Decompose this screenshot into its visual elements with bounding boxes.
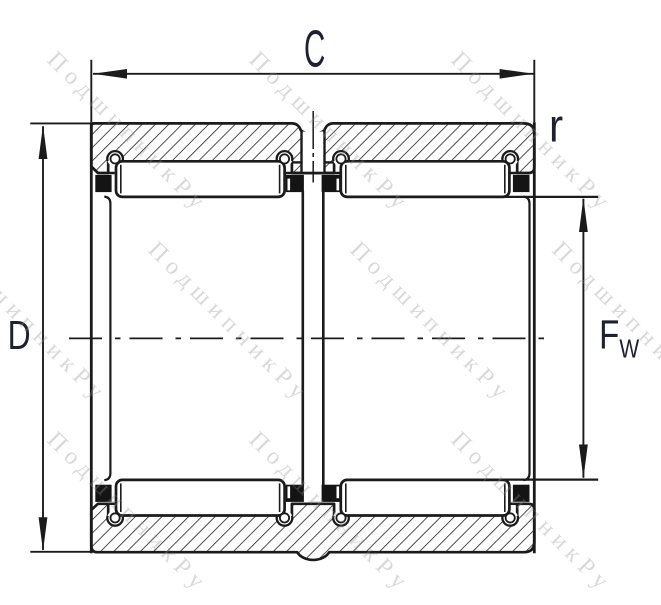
svg-text:C: C xyxy=(304,21,325,79)
